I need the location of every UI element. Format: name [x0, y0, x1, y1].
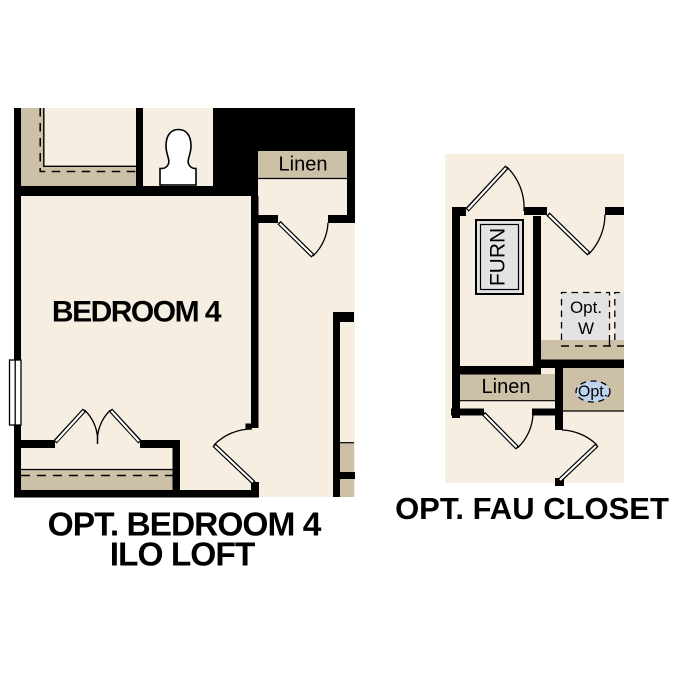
svg-text:FURN: FURN [487, 228, 510, 286]
svg-text:Opt.: Opt. [578, 384, 608, 401]
svg-text:Linen: Linen [279, 154, 328, 176]
svg-text:Opt.: Opt. [570, 298, 602, 317]
svg-text:Linen: Linen [482, 376, 531, 398]
svg-text:OPT. FAU CLOSET: OPT. FAU CLOSET [395, 491, 669, 526]
svg-text:BEDROOM 4: BEDROOM 4 [52, 296, 222, 329]
svg-text:ILO LOFT: ILO LOFT [110, 537, 256, 574]
svg-text:W: W [578, 319, 594, 338]
